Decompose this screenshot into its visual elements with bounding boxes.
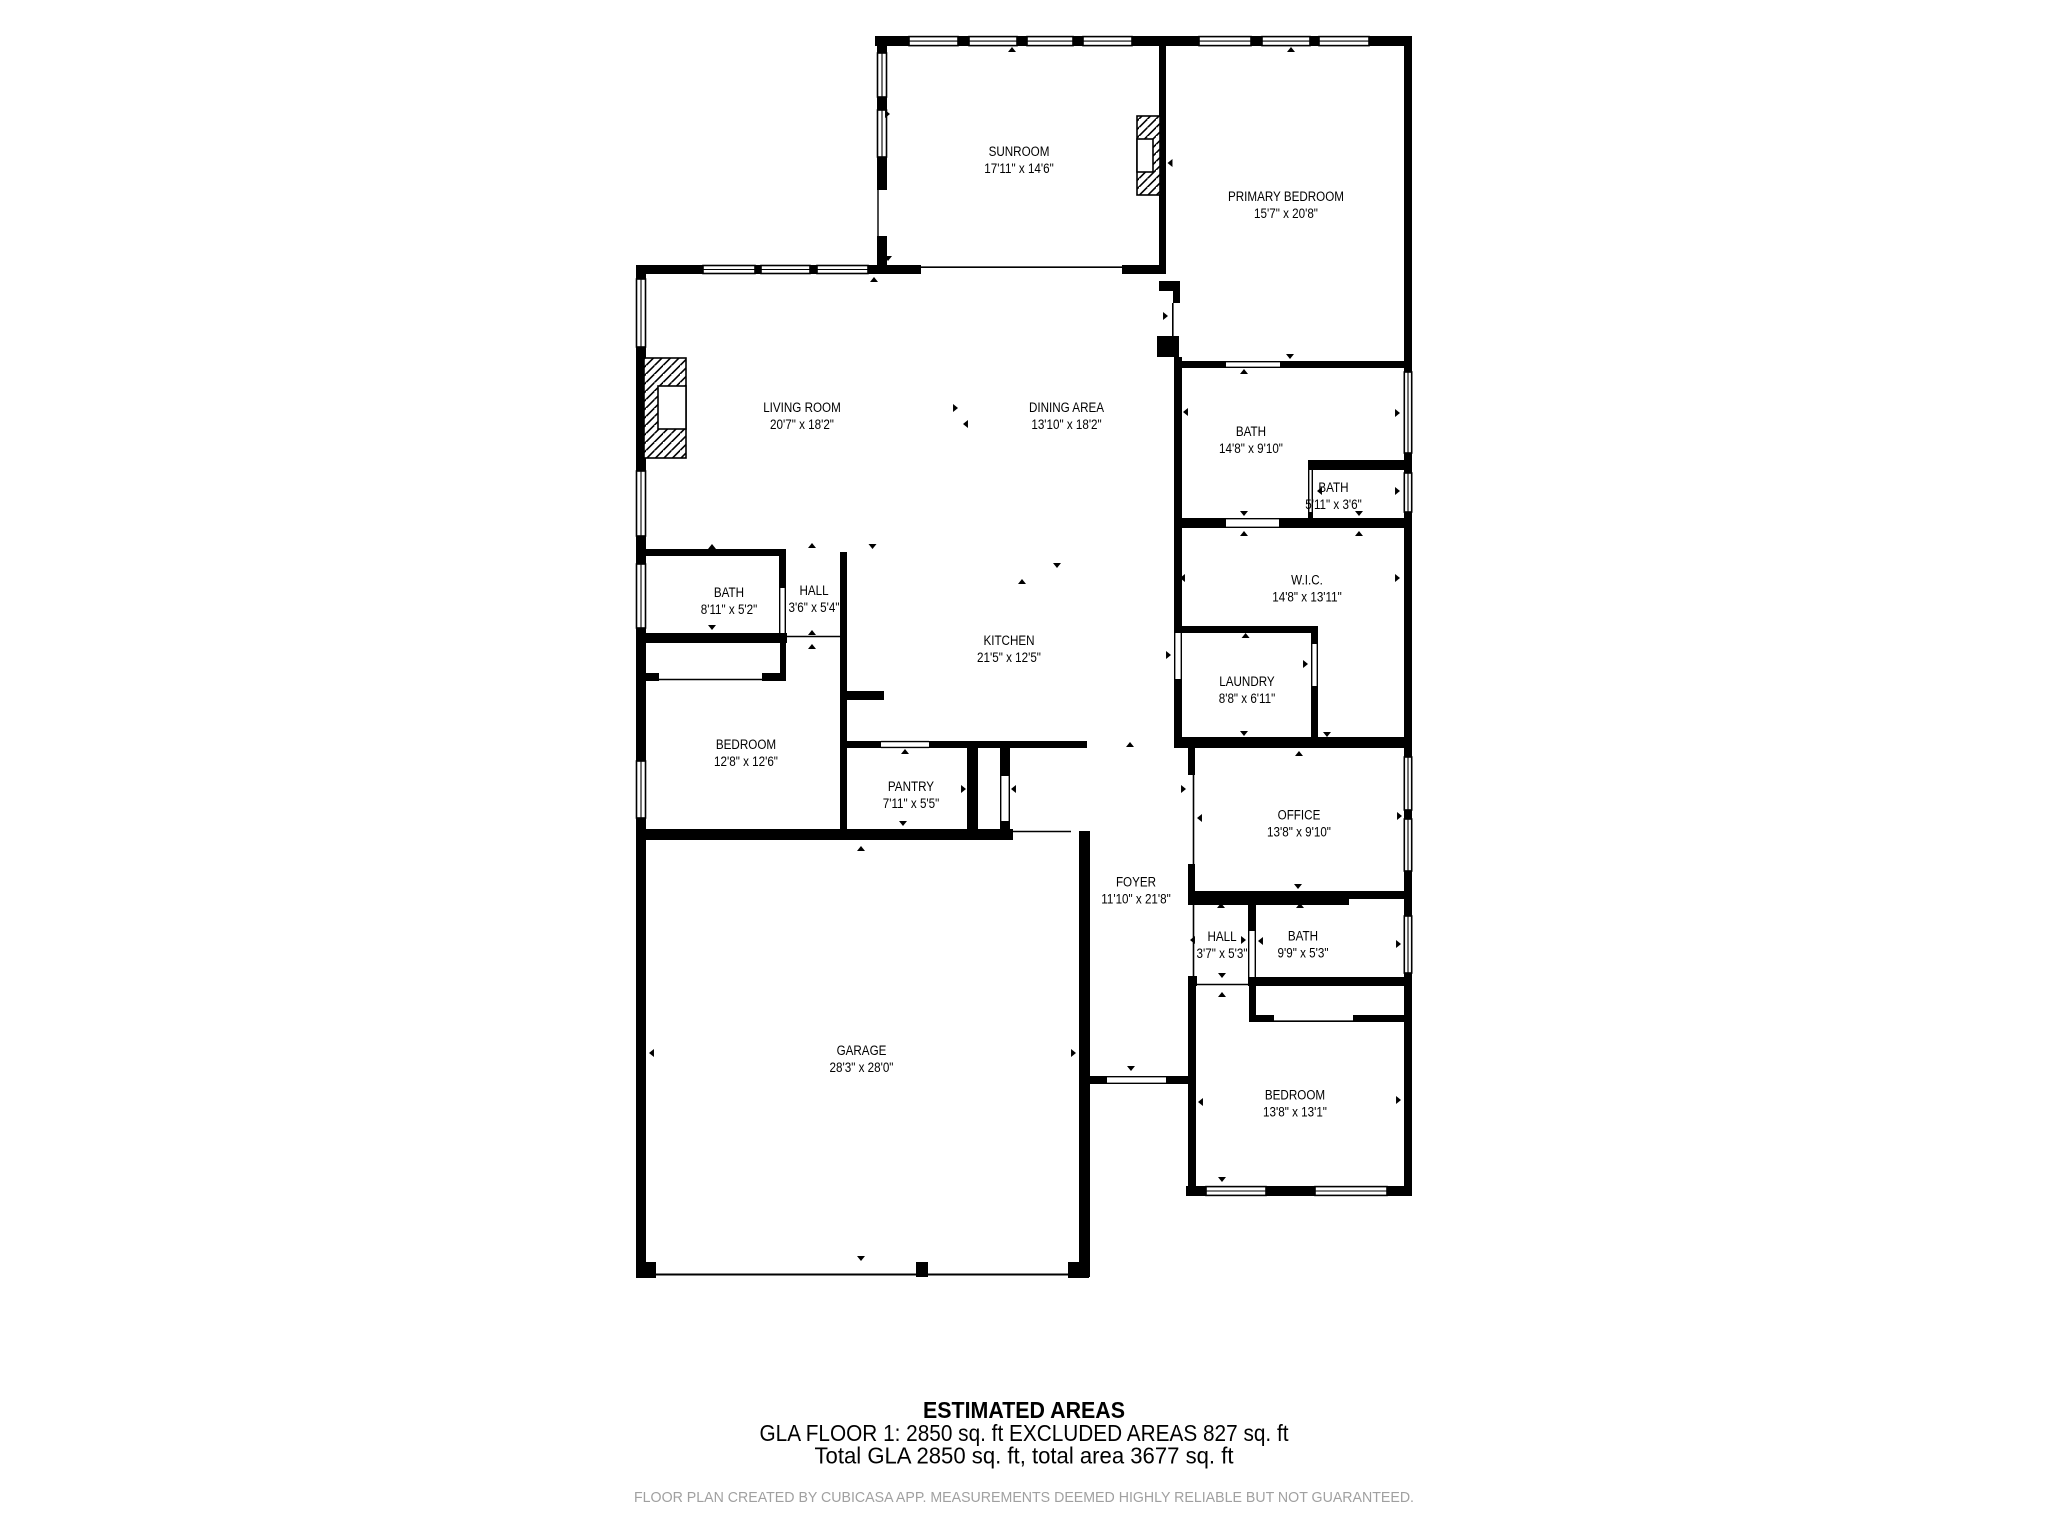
svg-text:3'7" x 5'3": 3'7" x 5'3" [1197, 946, 1248, 962]
svg-text:Total GLA 2850 sq. ft, total a: Total GLA 2850 sq. ft, total area 3677 s… [815, 1443, 1235, 1469]
svg-text:BATH: BATH [1318, 480, 1348, 496]
svg-text:LAUNDRY: LAUNDRY [1219, 674, 1275, 690]
svg-text:OFFICE: OFFICE [1278, 808, 1321, 824]
svg-text:3'6" x 5'4": 3'6" x 5'4" [789, 600, 840, 616]
svg-text:21'5" x 12'5": 21'5" x 12'5" [977, 650, 1041, 666]
svg-text:BATH: BATH [714, 585, 744, 601]
svg-text:9'9" x 5'3": 9'9" x 5'3" [1278, 946, 1329, 962]
svg-text:14'8" x 9'10": 14'8" x 9'10" [1219, 441, 1283, 457]
svg-text:20'7" x 18'2": 20'7" x 18'2" [770, 417, 834, 433]
svg-text:DINING AREA: DINING AREA [1029, 400, 1105, 416]
svg-text:11'10" x 21'8": 11'10" x 21'8" [1101, 892, 1171, 908]
svg-text:PANTRY: PANTRY [888, 779, 935, 795]
svg-text:5'11" x 3'6": 5'11" x 3'6" [1305, 497, 1362, 513]
svg-text:HALL: HALL [1207, 929, 1236, 945]
svg-text:W.I.C.: W.I.C. [1291, 573, 1323, 589]
svg-text:13'8" x 9'10": 13'8" x 9'10" [1267, 825, 1331, 841]
svg-text:LIVING ROOM: LIVING ROOM [763, 400, 841, 416]
svg-text:BATH: BATH [1288, 929, 1318, 945]
svg-text:17'11" x 14'6": 17'11" x 14'6" [984, 161, 1054, 177]
svg-text:7'11" x 5'5": 7'11" x 5'5" [883, 796, 940, 812]
svg-text:PRIMARY BEDROOM: PRIMARY BEDROOM [1228, 189, 1344, 205]
svg-text:GARAGE: GARAGE [837, 1043, 887, 1059]
svg-text:28'3" x 28'0": 28'3" x 28'0" [830, 1060, 894, 1076]
svg-text:15'7" x 20'8": 15'7" x 20'8" [1254, 206, 1318, 222]
svg-text:14'8" x 13'11": 14'8" x 13'11" [1272, 590, 1342, 606]
svg-text:13'10" x 18'2": 13'10" x 18'2" [1031, 417, 1101, 433]
svg-text:FOYER: FOYER [1116, 875, 1156, 891]
svg-text:BEDROOM: BEDROOM [716, 737, 776, 753]
svg-text:12'8" x 12'6": 12'8" x 12'6" [714, 754, 778, 770]
svg-text:8'8" x 6'11": 8'8" x 6'11" [1219, 691, 1276, 707]
svg-text:BEDROOM: BEDROOM [1265, 1088, 1325, 1104]
svg-text:SUNROOM: SUNROOM [989, 144, 1050, 160]
svg-text:HALL: HALL [799, 583, 828, 599]
svg-text:FLOOR PLAN CREATED BY CUBICASA: FLOOR PLAN CREATED BY CUBICASA APP. MEAS… [634, 1489, 1414, 1506]
svg-text:KITCHEN: KITCHEN [983, 633, 1034, 649]
svg-text:13'8" x 13'1": 13'8" x 13'1" [1263, 1105, 1327, 1121]
svg-text:BATH: BATH [1236, 424, 1266, 440]
svg-text:8'11" x 5'2": 8'11" x 5'2" [701, 602, 758, 618]
